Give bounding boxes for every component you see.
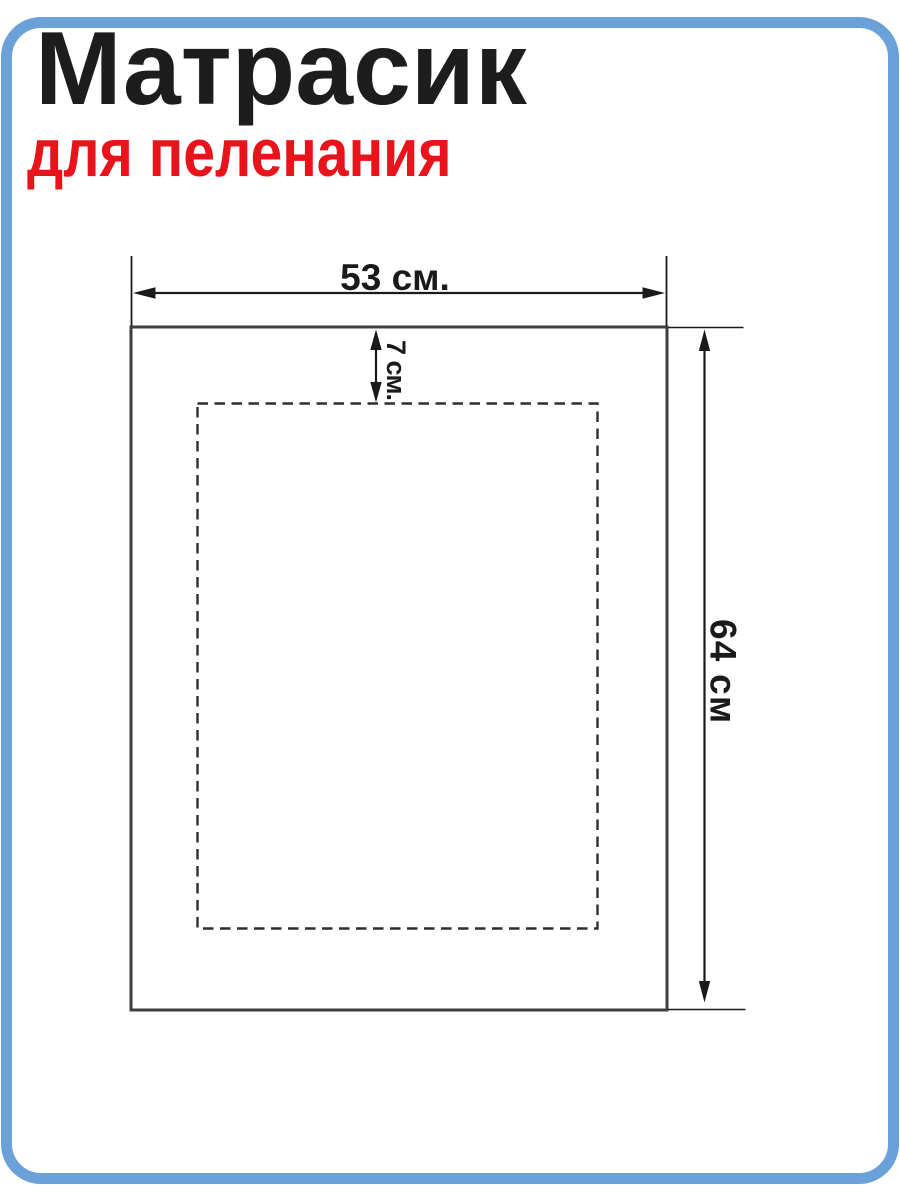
svg-text:64 см: 64 см (703, 619, 744, 724)
svg-text:53 см.: 53 см. (340, 257, 450, 298)
svg-text:7 см.: 7 см. (381, 340, 411, 400)
